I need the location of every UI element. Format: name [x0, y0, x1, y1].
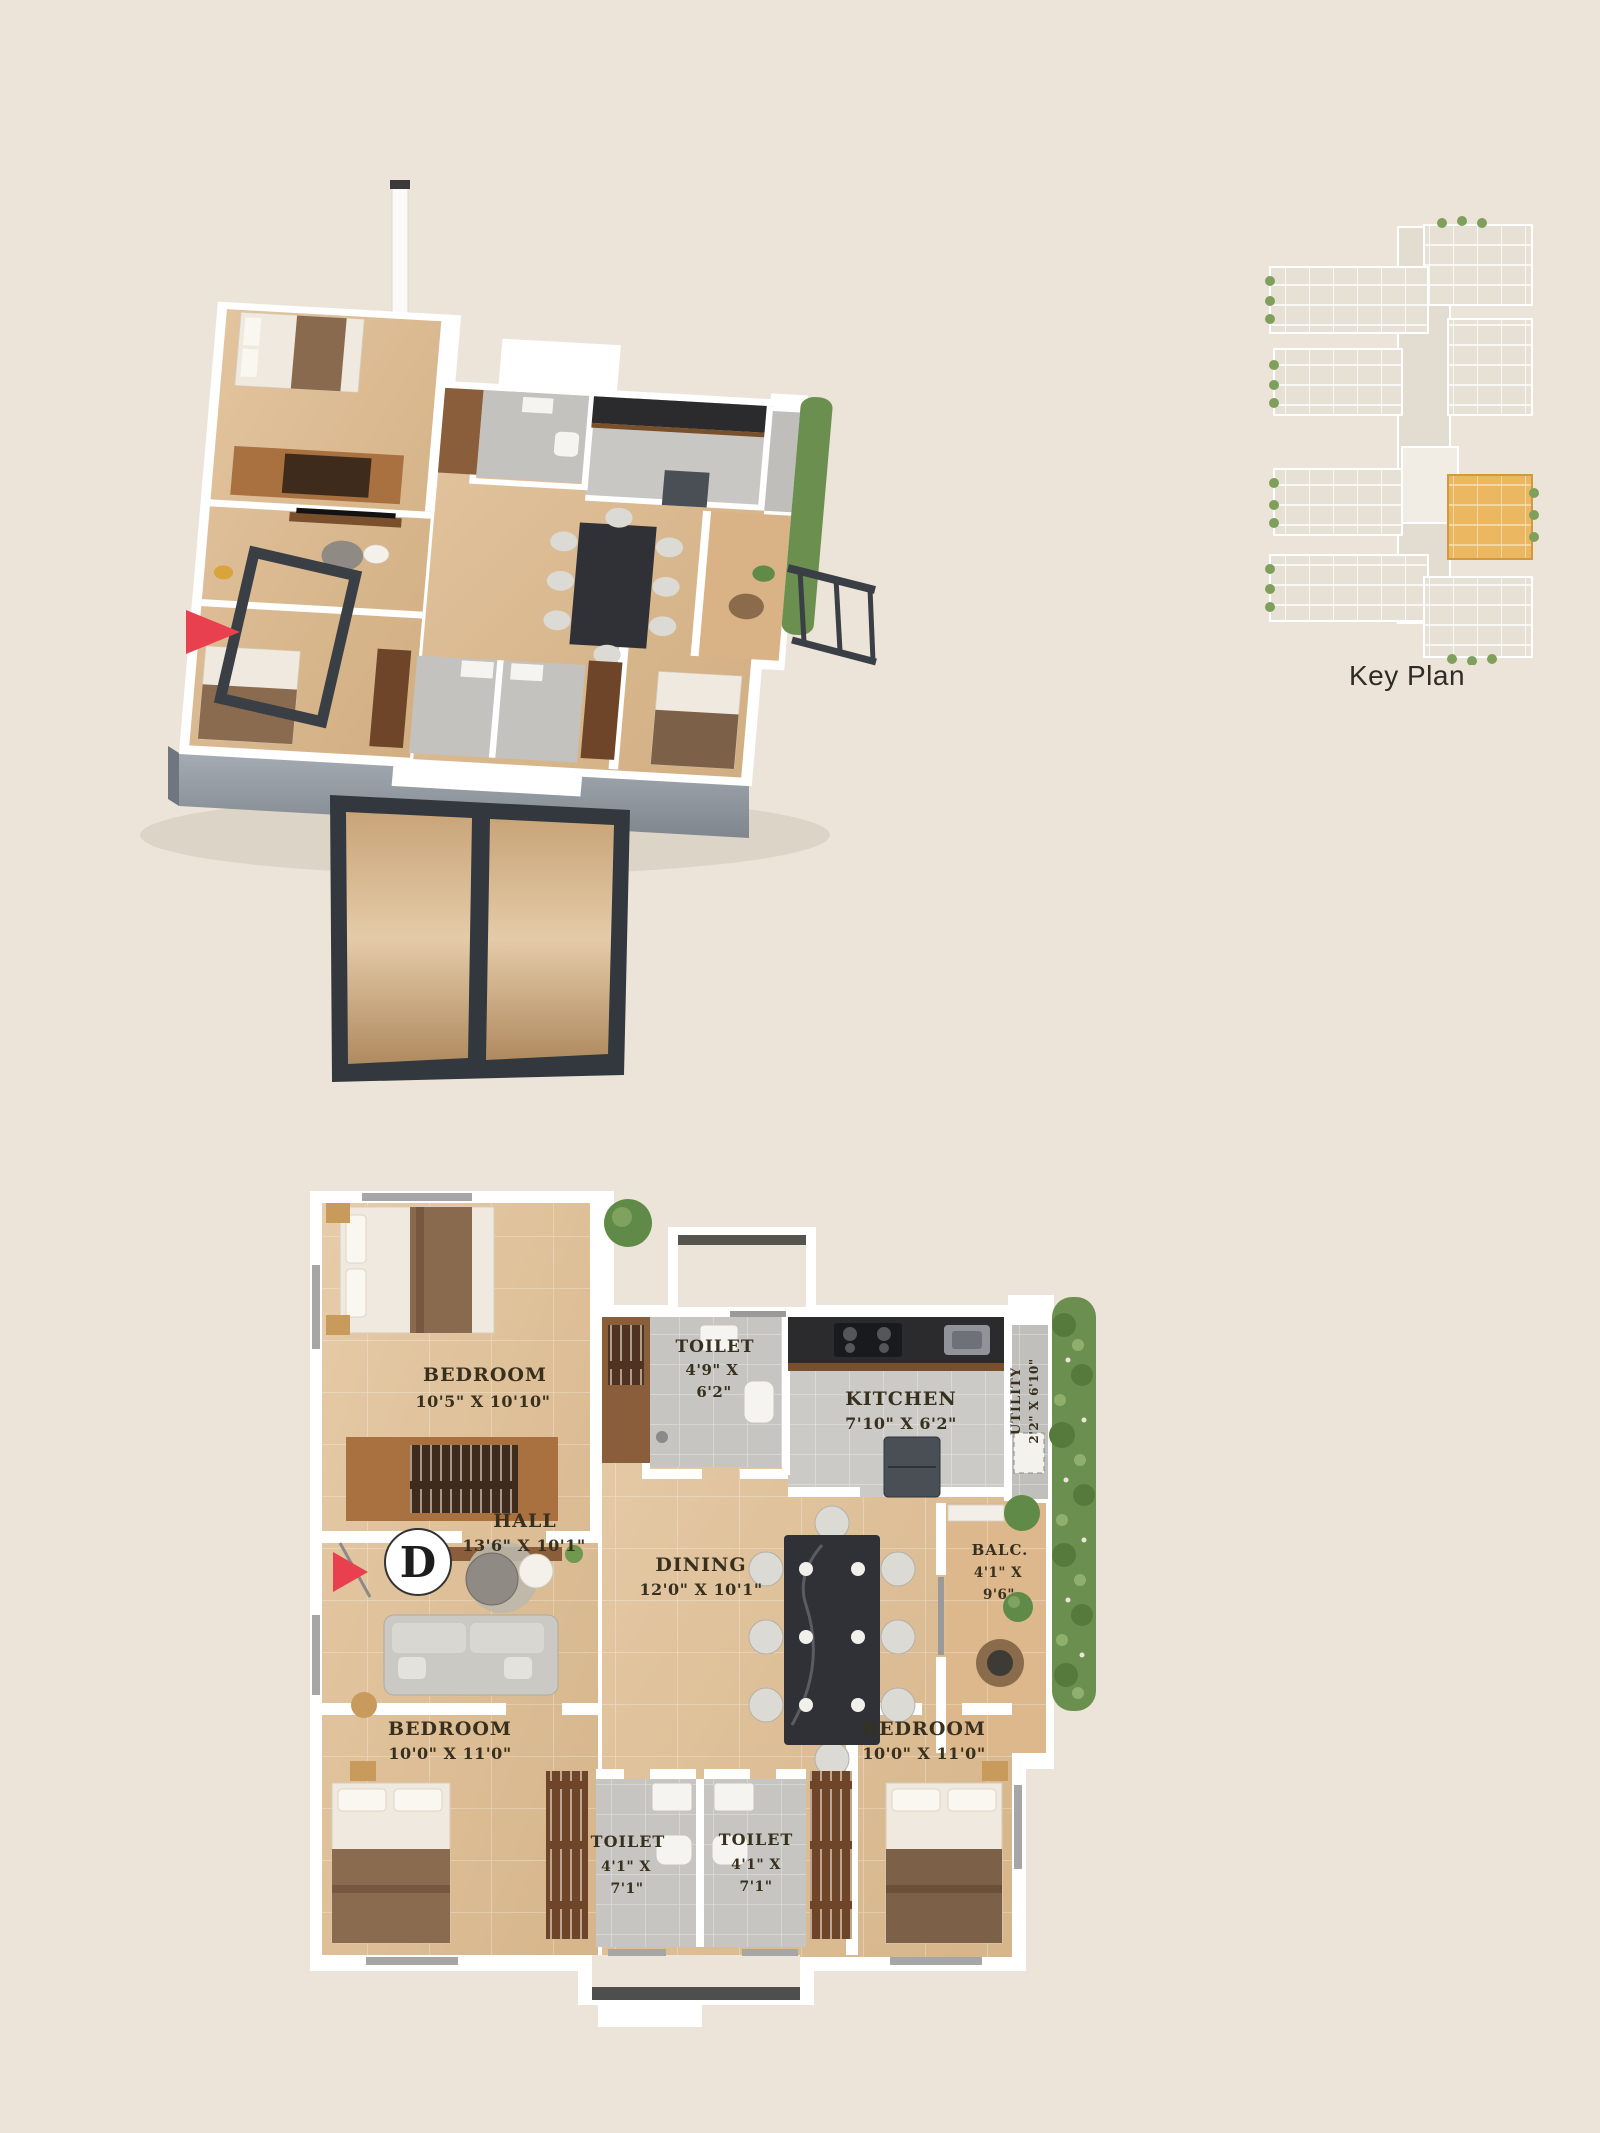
isometric-3d-floorplan	[100, 170, 920, 1110]
room-label-toilet2-name: TOILET	[591, 1832, 666, 1851]
room-label-balcony-dims1: 4'1" X	[974, 1565, 1022, 1581]
room-label-bedroom1-dims: 10'5" X 10'10"	[416, 1392, 551, 1411]
room-label-toilet2-dims1: 4'1" X	[601, 1859, 651, 1875]
plinth-left-face	[168, 746, 179, 806]
plant-highlight	[612, 1207, 632, 1227]
room-label-kitchen-name: KITCHEN	[845, 1388, 956, 1410]
room-label-kitchen-dims: 7'10" X 6'2"	[845, 1414, 957, 1433]
keyplan-highlighted-unit	[1448, 475, 1532, 559]
room-label-dining-name: DINING	[655, 1554, 746, 1576]
wall-fin	[390, 180, 410, 324]
floor-plan-drawing: D	[306, 1185, 1100, 2100]
room-label-toilet1-dims2: 6'2"	[696, 1383, 731, 1401]
brochure-page: Key Plan	[0, 0, 1600, 2133]
room-label-toilet3-name: TOILET	[719, 1830, 794, 1849]
floor-plan-2d: D	[306, 1185, 1100, 2100]
key-plan-caption: Key Plan	[1262, 660, 1552, 692]
key-plan-diagram	[1262, 215, 1552, 665]
planter-strip	[1049, 1297, 1096, 1711]
room-label-bedroom3-name: BEDROOM	[862, 1718, 986, 1740]
room-label-toilet3-dims2: 7'1"	[739, 1879, 772, 1895]
balcony-railing	[788, 568, 876, 662]
foyer-wardrobe	[602, 1317, 650, 1463]
room-label-toilet1-dims1: 4'9" X	[685, 1361, 738, 1379]
room-label-utility-dims: 2'2" X 6'10"	[1027, 1358, 1041, 1443]
isometric-3d-rendering	[100, 170, 920, 1110]
glass-door-panel	[330, 795, 630, 1082]
bedroom3-furniture	[810, 1761, 1008, 1943]
room-label-balcony-name: BALC.	[972, 1541, 1029, 1559]
room-label-toilet1-name: TOILET	[676, 1337, 755, 1357]
room-label-bedroom3-dims: 10'0" X 11'0"	[862, 1744, 985, 1763]
room-label-dining-dims: 12'0" X 10'1"	[639, 1580, 762, 1599]
duct-shaft	[678, 1235, 806, 1317]
room-label-hall-name: HALL	[493, 1510, 556, 1532]
balcony-slider	[938, 1577, 944, 1655]
key-plan	[1262, 215, 1552, 665]
room-label-bedroom2-name: BEDROOM	[388, 1718, 512, 1740]
room-label-utility-name: UTILITY	[1009, 1367, 1024, 1435]
room-label-bedroom2-dims: 10'0" X 11'0"	[388, 1744, 511, 1763]
room-label-bedroom1-name: BEDROOM	[423, 1364, 547, 1386]
entry-vestibule	[592, 1955, 800, 2000]
unit-letter: D	[400, 1538, 436, 1587]
room-label-balcony-dims2: 9'6"	[983, 1587, 1015, 1603]
room-label-toilet2-dims2: 7'1"	[610, 1881, 643, 1897]
room-label-hall-dims: 13'6" X 10'1"	[462, 1536, 585, 1555]
room-label-toilet3-dims1: 4'1" X	[731, 1857, 781, 1873]
